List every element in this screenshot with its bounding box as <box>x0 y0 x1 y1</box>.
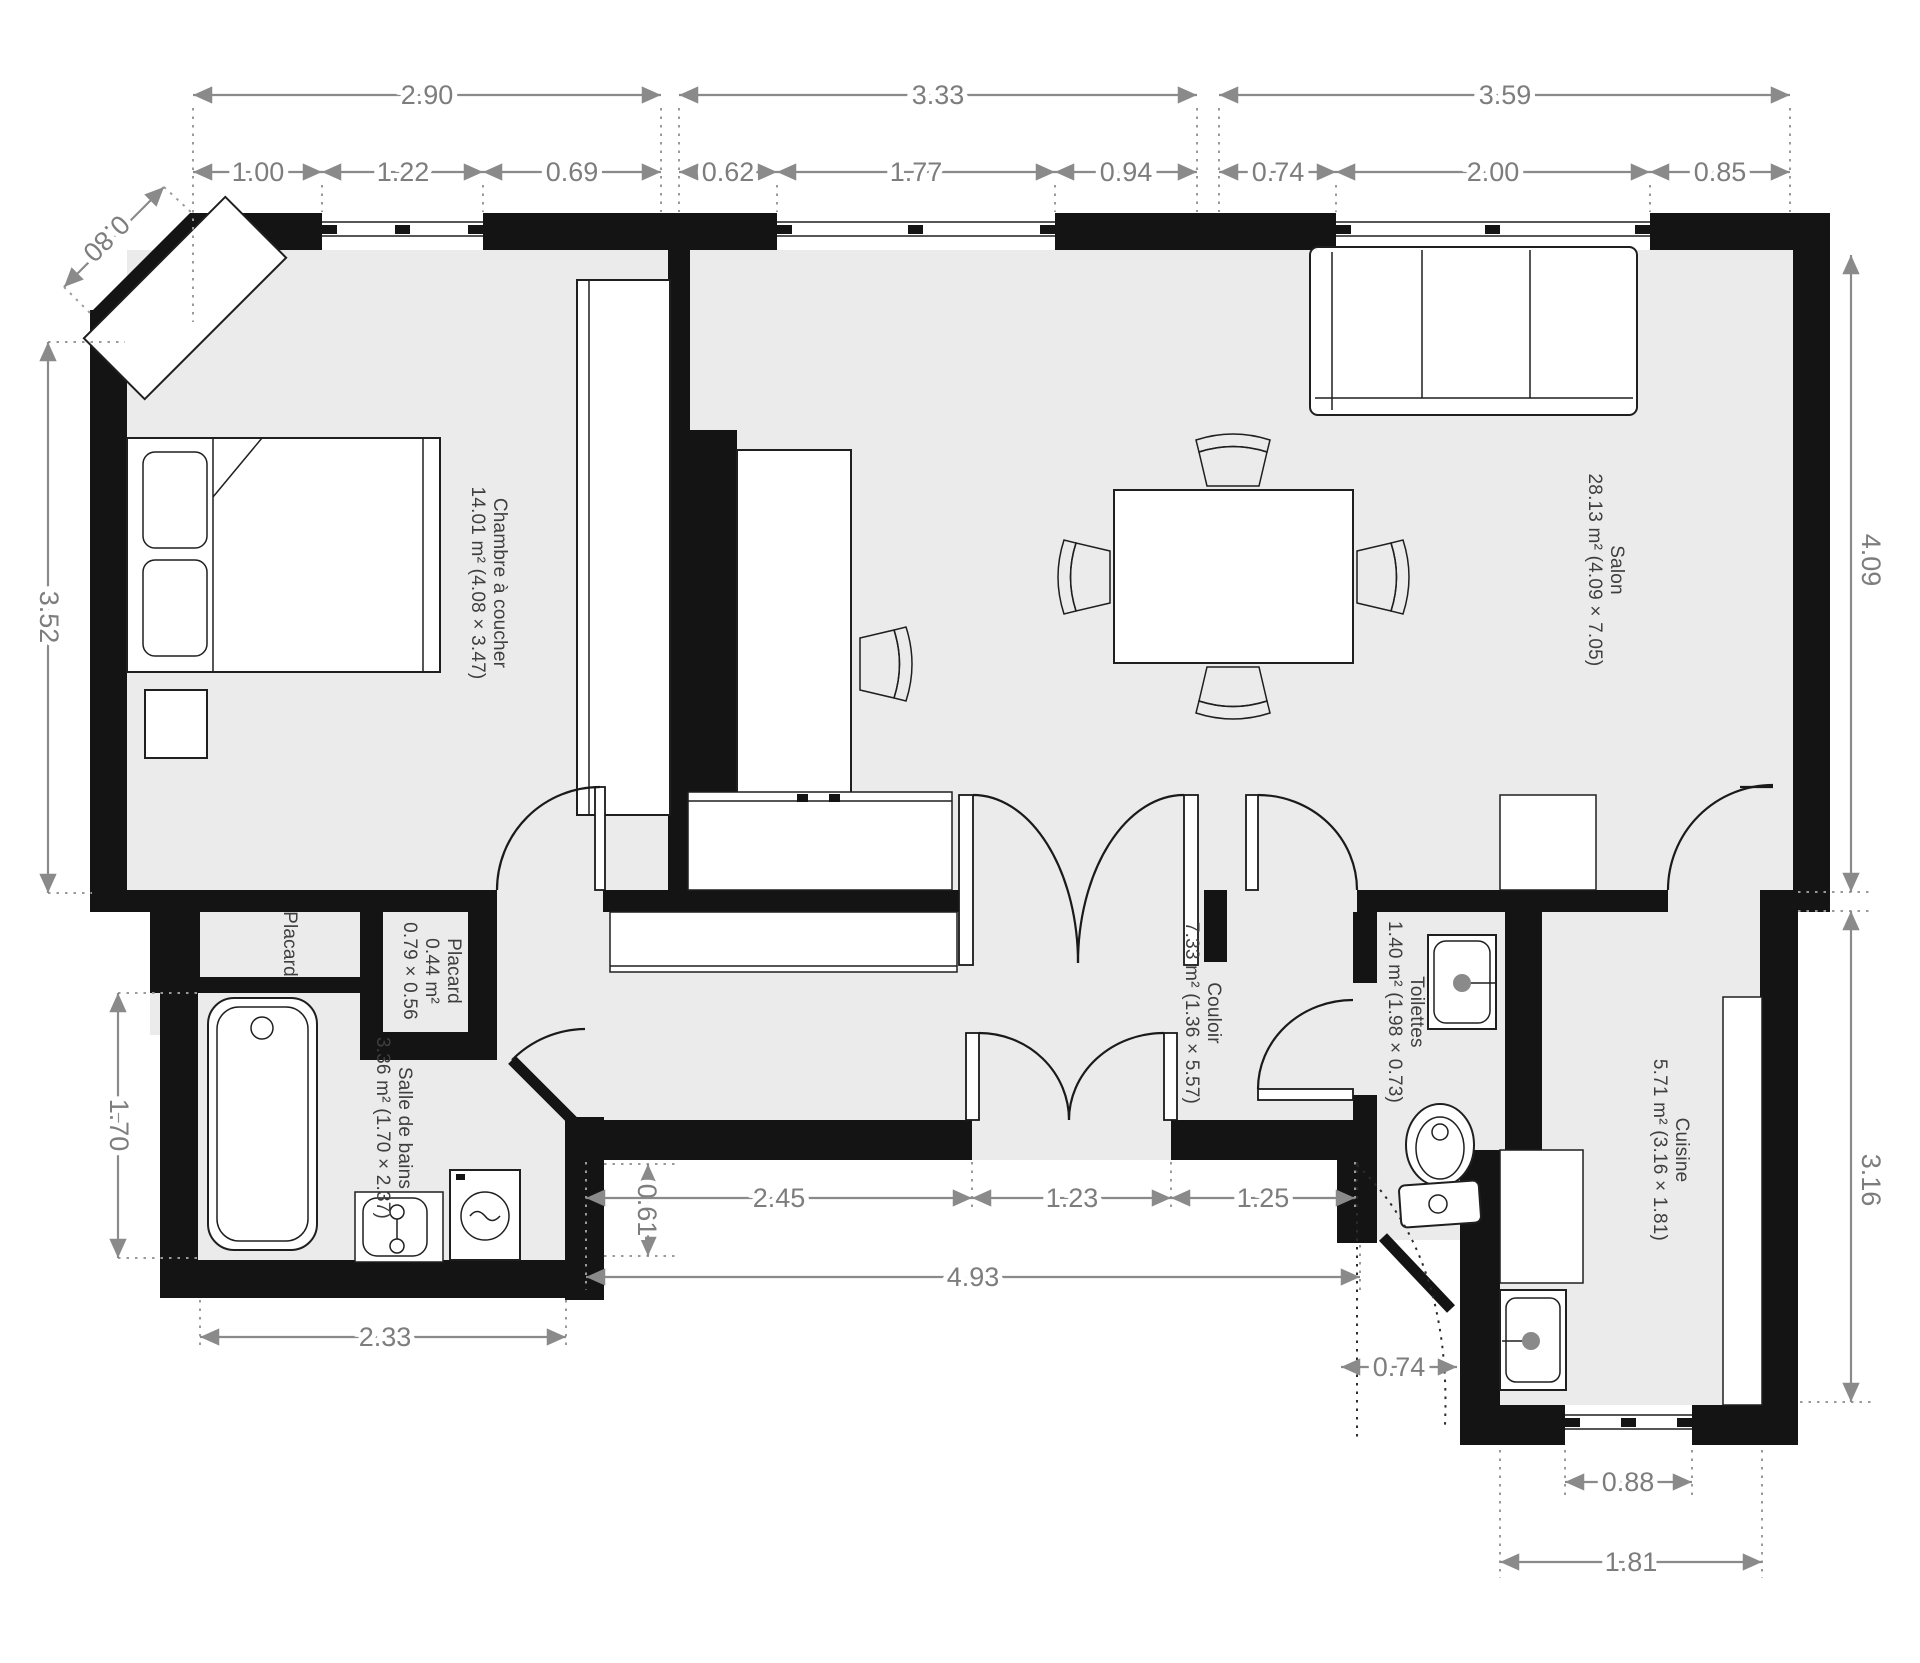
label-salon-details: 28.13 m² (4.09 × 7.05) <box>1584 474 1605 667</box>
nightstand <box>145 690 207 758</box>
label-couloir-details: 7.33 m² (1.36 × 5.57) <box>1181 922 1202 1104</box>
floor-plan-page: 2.90 3.33 3.59 1.00 1.22 0.69 0.62 1.77 … <box>0 0 1920 1663</box>
label-placard-area: 0.44 m² <box>421 938 442 1004</box>
wall-right-upper <box>1793 213 1830 912</box>
dim-jog: 0.61 <box>632 1184 662 1237</box>
wall-chambre-salon <box>668 250 690 890</box>
kitchen-sink <box>1500 1290 1566 1390</box>
dim-seg-9: 0.85 <box>1694 157 1747 187</box>
window-salon-right <box>1336 213 1650 250</box>
toilet <box>1399 1104 1482 1228</box>
label-chambre-details: 14.01 m² (4.08 × 3.47) <box>467 487 488 680</box>
dim-right-salon: 4.09 <box>1856 534 1886 587</box>
window-chambre <box>322 213 483 250</box>
label-couloir-name: Couloir <box>1203 982 1224 1044</box>
toilettes-sink <box>1428 935 1496 1029</box>
dim-double-door: 1.23 <box>1046 1183 1099 1213</box>
dim-entry: 0.74 <box>1373 1352 1426 1382</box>
dim-left-bath: 1.70 <box>104 1099 134 1152</box>
dim-seg-3: 0.69 <box>546 157 599 187</box>
label-placard-nord: Placard <box>279 911 300 977</box>
dim-seg-1: 1.00 <box>232 157 285 187</box>
kitchen-counter-right <box>1723 997 1762 1405</box>
desk <box>737 450 851 835</box>
window-cuisine <box>1565 1405 1692 1445</box>
dim-total: 4.93 <box>947 1262 1000 1292</box>
dim-right-kitchen: 3.16 <box>1856 1154 1886 1207</box>
label-placard-size: 0.79 × 0.56 <box>399 922 420 1020</box>
dim-corridor-right: 1.25 <box>1237 1183 1290 1213</box>
fridge <box>1500 795 1596 890</box>
bathtub <box>208 998 317 1250</box>
sofa <box>1310 247 1637 415</box>
dim-left-bedroom: 3.52 <box>34 591 64 644</box>
pillow <box>143 560 207 656</box>
dim-corridor: 2.45 <box>753 1183 806 1213</box>
dim-seg-8: 2.00 <box>1467 157 1520 187</box>
label-toilettes-details: 1.40 m² (1.98 × 0.73) <box>1384 921 1405 1103</box>
label-cuisine-name: Cuisine <box>1671 1118 1692 1183</box>
sideboard-couloir <box>610 912 957 972</box>
dim-diagonal: 0.80 <box>77 209 135 267</box>
label-sdb-details: 3.36 m² (1.70 × 2.37) <box>372 1037 393 1219</box>
dim-seg-7: 0.74 <box>1252 157 1305 187</box>
window-salon-left <box>777 213 1055 250</box>
dim-seg-6: 0.94 <box>1100 157 1153 187</box>
bed <box>127 438 440 672</box>
dim-bath-width: 2.33 <box>359 1322 412 1352</box>
wall-pillar <box>1204 890 1227 962</box>
wardrobe <box>577 280 670 815</box>
label-chambre-name: Chambre à coucher <box>489 498 510 669</box>
dim-top-1: 2.90 <box>401 80 454 110</box>
label-cuisine-details: 5.71 m² (3.16 × 1.81) <box>1649 1059 1670 1241</box>
dim-top-3: 3.59 <box>1479 80 1532 110</box>
wall-right-lower <box>1760 890 1798 1445</box>
label-salon-name: Salon <box>1606 545 1627 595</box>
sideboard-salon <box>688 792 952 890</box>
label-placard-name: Placard <box>443 938 464 1004</box>
label-sdb-name: Salle de bains <box>394 1067 415 1189</box>
dim-top-2: 3.33 <box>912 80 965 110</box>
dim-seg-4: 0.62 <box>702 157 755 187</box>
pillow <box>143 452 207 548</box>
label-toilettes-name: Toilettes <box>1406 976 1427 1048</box>
dim-seg-2: 1.22 <box>377 157 430 187</box>
dim-kitchen-window: 0.88 <box>1602 1467 1655 1497</box>
floor-plan-canvas: 2.90 3.33 3.59 1.00 1.22 0.69 0.62 1.77 … <box>0 0 1920 1663</box>
dim-seg-5: 1.77 <box>890 157 943 187</box>
kitchen-counter-left <box>1500 1150 1583 1283</box>
washing-machine <box>450 1170 520 1260</box>
dim-kitchen-width: 1.81 <box>1605 1547 1658 1577</box>
bathroom-sink <box>355 1192 443 1262</box>
